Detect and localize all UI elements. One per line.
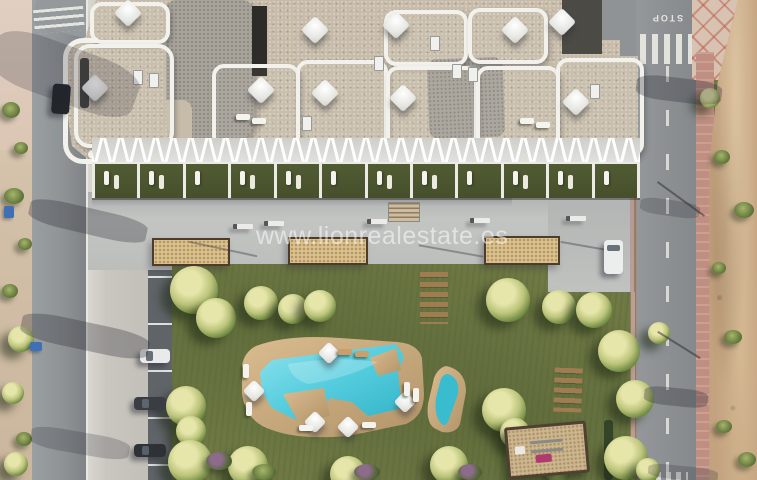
rooftop-ac-unit [590, 84, 600, 99]
bush [4, 188, 24, 204]
wood-steps-path [553, 368, 583, 413]
stop-road-marking: STOP [646, 13, 688, 23]
terrace-row [92, 162, 640, 200]
bush [716, 420, 732, 433]
garden-terrace [274, 164, 319, 198]
aerial-render-scene: STOP [0, 0, 757, 480]
garden-terrace [410, 164, 455, 198]
tree [304, 290, 336, 322]
roof-terrace-unit [212, 64, 300, 148]
tree [598, 330, 640, 372]
playground-frame [530, 439, 562, 445]
tree [4, 452, 28, 476]
bench [233, 224, 253, 229]
bush [712, 262, 726, 274]
garden-terrace [592, 164, 640, 198]
bush [724, 330, 742, 344]
sun-lounger [299, 425, 313, 431]
flower-bush [206, 452, 232, 470]
garden-terrace [546, 164, 591, 198]
bench [566, 216, 586, 221]
bush [738, 452, 756, 467]
tree [576, 292, 612, 328]
sun-lounger [338, 349, 352, 355]
playground-bench [515, 446, 526, 455]
watermark: www.lionrealestate.es [256, 222, 516, 251]
sun-lounger [252, 118, 266, 124]
bush [2, 284, 18, 298]
crosswalk-east [640, 34, 694, 64]
van-windshield [607, 245, 620, 251]
car-windshield [142, 399, 149, 408]
flower-bush [354, 464, 380, 480]
roof-terrace-unit [296, 60, 388, 148]
garden-terrace [137, 164, 182, 198]
rooftop-ac-unit [452, 64, 462, 79]
sun-lounger [404, 382, 410, 396]
tree [244, 286, 278, 320]
rooftop-ac-unit [374, 56, 384, 71]
playground-slide [535, 454, 552, 463]
tree [486, 278, 530, 322]
rooftop-ac-unit [302, 116, 312, 131]
plaza-stairs [388, 202, 420, 222]
car-windshield [142, 446, 149, 455]
tree [2, 382, 24, 404]
road-east-center-line [666, 66, 669, 480]
tree [542, 290, 576, 324]
rooftop-ac-unit [468, 67, 478, 82]
recycling-bin [4, 206, 14, 218]
playground-frame [531, 448, 563, 454]
rooftop-ac-unit [149, 73, 159, 88]
garden-terrace [228, 164, 273, 198]
van-white [604, 240, 623, 274]
bush [734, 202, 754, 218]
bush [252, 464, 276, 480]
recycling-bin [30, 342, 42, 351]
bush [14, 142, 28, 154]
sun-lounger [355, 351, 369, 357]
bush [714, 150, 730, 164]
garden-terrace [183, 164, 228, 198]
car-dark [134, 444, 166, 457]
flower-bush [458, 464, 482, 480]
sun-lounger [413, 388, 419, 402]
sun-lounger [243, 364, 249, 378]
wood-steps-path [420, 272, 448, 324]
tree [196, 298, 236, 338]
garden-terrace [92, 164, 137, 198]
bush [18, 238, 32, 250]
sun-lounger [520, 118, 534, 124]
crosswalk-west [33, 6, 85, 34]
garden-terrace [365, 164, 410, 198]
pergola-band [92, 138, 640, 164]
rooftop-ac-unit [430, 36, 440, 51]
playground [504, 421, 590, 480]
car-dark [134, 397, 166, 410]
garden-terrace [455, 164, 500, 198]
garden-terrace [501, 164, 546, 198]
sun-lounger [362, 422, 376, 428]
sun-lounger [236, 114, 250, 120]
roof-terrace-unit [476, 66, 560, 148]
sun-lounger [246, 402, 252, 416]
sun-lounger [536, 122, 550, 128]
bush [2, 102, 20, 118]
garden-terrace [319, 164, 364, 198]
